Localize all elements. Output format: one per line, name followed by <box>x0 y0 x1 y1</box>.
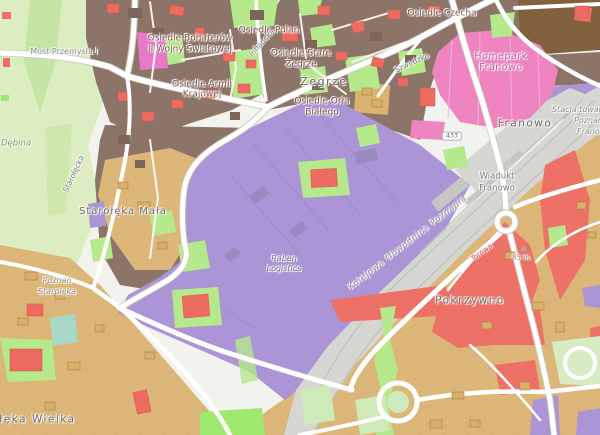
elevation-marker-icon <box>520 245 528 251</box>
loop-infield <box>387 391 409 413</box>
map-canvas[interactable]: Most Przemysła I Dębina Osiedle Bohateró… <box>0 0 600 435</box>
teal-zone <box>50 314 78 346</box>
map-layers <box>0 0 600 435</box>
